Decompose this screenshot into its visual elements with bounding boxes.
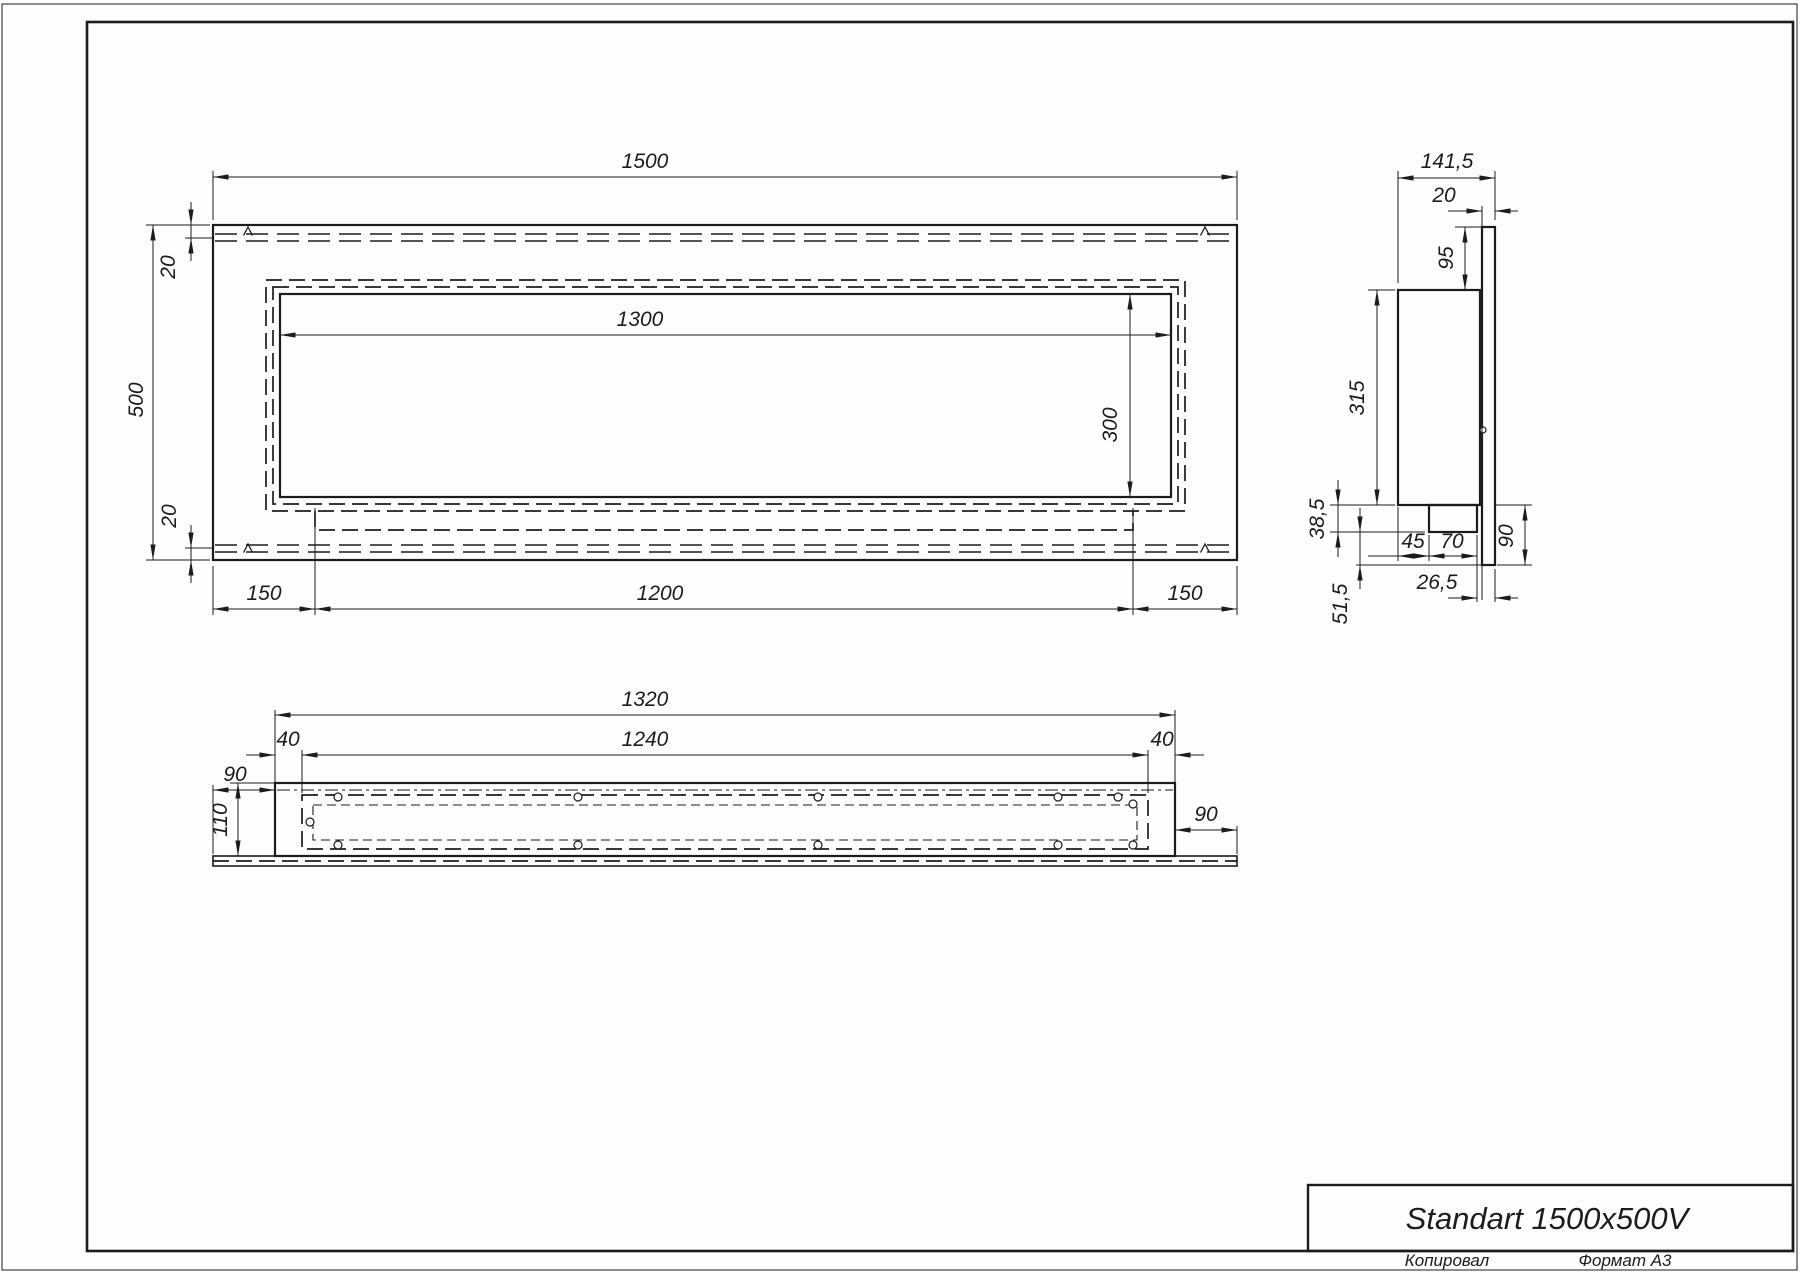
dim-label: 90 <box>1495 524 1518 548</box>
mounting-holes <box>306 793 1137 849</box>
dim-label: 1200 <box>637 582 684 605</box>
side-body <box>1398 290 1480 505</box>
bottom-inner-hidden <box>313 805 1137 840</box>
technical-drawing: 1500 500 20 20 1300 <box>0 0 1800 1273</box>
dim-front-bottom-chain: 150 1200 150 <box>213 508 1237 615</box>
hook-mark-icon <box>1201 227 1210 236</box>
side-burner <box>1429 505 1477 532</box>
dim-label: 38,5 <box>1306 498 1329 539</box>
format-label: Формат А3 <box>1578 1251 1672 1270</box>
front-opening <box>280 294 1171 497</box>
dim-label: 1300 <box>617 308 664 331</box>
outer-border <box>2 4 1797 1270</box>
copied-label: Копировал <box>1405 1251 1490 1270</box>
dim-label: 40 <box>1150 728 1174 751</box>
dim-label: 20 <box>157 255 180 280</box>
drawing-sheet: 1500 500 20 20 1300 <box>0 0 1800 1273</box>
dim-side-edge-offset: 26,5 <box>1416 569 1518 602</box>
dim-bottom-box-length: 1320 <box>275 688 1175 790</box>
title-block: Standart 1500x500V Копировал Формат А3 <box>1308 1185 1793 1270</box>
dim-side-panel-thickness: 20 <box>1431 184 1518 211</box>
dim-label: 20 <box>1431 184 1456 207</box>
dim-label: 26,5 <box>1416 571 1458 594</box>
dim-side-body-height: 315 <box>1330 290 1395 505</box>
front-tray-hidden <box>315 511 1133 530</box>
drawing-frame <box>2 4 1797 1270</box>
front-opening-hidden1 <box>273 287 1178 504</box>
dim-label: 45 <box>1401 530 1425 553</box>
panel-hole <box>1480 427 1486 433</box>
dim-bottom-depth: 110 <box>209 783 275 856</box>
dim-bottom-right-flange: 90 <box>1175 803 1237 854</box>
dim-label: 150 <box>246 582 281 605</box>
bottom-box <box>275 783 1175 856</box>
dim-side-flange-height: 90 <box>1495 505 1532 565</box>
dim-label: 95 <box>1435 246 1458 270</box>
dim-front-bottom-offset: 20 <box>158 504 213 583</box>
dim-label: 300 <box>1099 407 1122 442</box>
dim-front-opening-height: 300 <box>1099 294 1130 497</box>
dim-label: 51,5 <box>1329 583 1352 624</box>
side-view: 141,5 20 95 315 38,5 <box>1306 150 1532 624</box>
bottom-view: 1320 40 1240 40 90 110 90 <box>209 688 1237 866</box>
dim-label: 500 <box>125 382 148 417</box>
bottom-opening-hidden <box>302 795 1148 849</box>
dim-label: 1500 <box>622 150 669 173</box>
drawing-title: Standart 1500x500V <box>1406 1201 1692 1236</box>
dim-label: 1320 <box>622 688 669 711</box>
front-outline <box>213 225 1237 560</box>
dim-label: 40 <box>276 728 300 751</box>
front-opening-hidden2 <box>266 280 1185 511</box>
dim-label: 150 <box>1167 582 1202 605</box>
dim-label: 70 <box>1440 530 1464 553</box>
side-front-panel <box>1482 227 1495 565</box>
dim-label: 20 <box>158 504 181 529</box>
inner-frame <box>87 22 1793 1251</box>
dim-label: 110 <box>209 803 232 837</box>
dim-label: 1240 <box>622 728 669 751</box>
dim-front-opening-width: 1300 <box>280 308 1171 335</box>
dim-side-top-height: 95 <box>1435 227 1482 290</box>
dim-label: 90 <box>1194 803 1218 826</box>
dim-label: 141,5 <box>1421 150 1474 173</box>
dim-front-overall-width: 1500 <box>213 150 1237 220</box>
dim-label: 315 <box>1346 380 1369 415</box>
dim-front-top-offset: 20 <box>157 202 213 280</box>
front-view: 1500 500 20 20 1300 <box>125 150 1237 615</box>
dim-side-bottom-height: 51,5 <box>1329 508 1482 624</box>
